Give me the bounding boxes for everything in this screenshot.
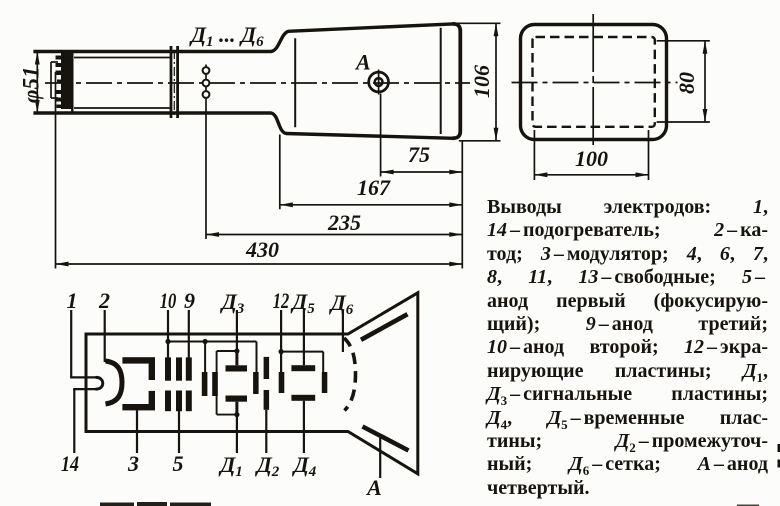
svg-text:80: 80 — [674, 72, 699, 94]
svg-text:14: 14 — [61, 451, 79, 476]
svg-text:Д4: Д4 — [292, 452, 317, 480]
svg-text:75: 75 — [408, 142, 430, 167]
svg-text:12: 12 — [273, 288, 290, 313]
svg-text:9: 9 — [184, 288, 195, 313]
svg-text:3: 3 — [127, 451, 139, 476]
svg-text:Д2: Д2 — [255, 452, 280, 480]
svg-text:A: A — [365, 475, 382, 500]
svg-text:5: 5 — [173, 451, 184, 476]
svg-text:Д1 ... Д6: Д1 ... Д6 — [189, 22, 264, 50]
svg-text:167: 167 — [357, 175, 391, 200]
svg-text:430: 430 — [245, 237, 279, 262]
svg-text:φ51: φ51 — [19, 67, 44, 103]
svg-text:Д6: Д6 — [329, 290, 354, 318]
svg-text:A: A — [354, 50, 371, 75]
svg-text:Д1: Д1 — [218, 452, 243, 480]
svg-text:Д5: Д5 — [290, 289, 315, 317]
svg-text:10: 10 — [160, 288, 177, 313]
svg-text:235: 235 — [327, 210, 361, 235]
svg-text:100: 100 — [575, 146, 608, 171]
svg-text:Д3: Д3 — [220, 289, 245, 317]
svg-text:106: 106 — [469, 65, 494, 98]
svg-text:1: 1 — [67, 288, 78, 313]
svg-text:2: 2 — [98, 288, 110, 313]
